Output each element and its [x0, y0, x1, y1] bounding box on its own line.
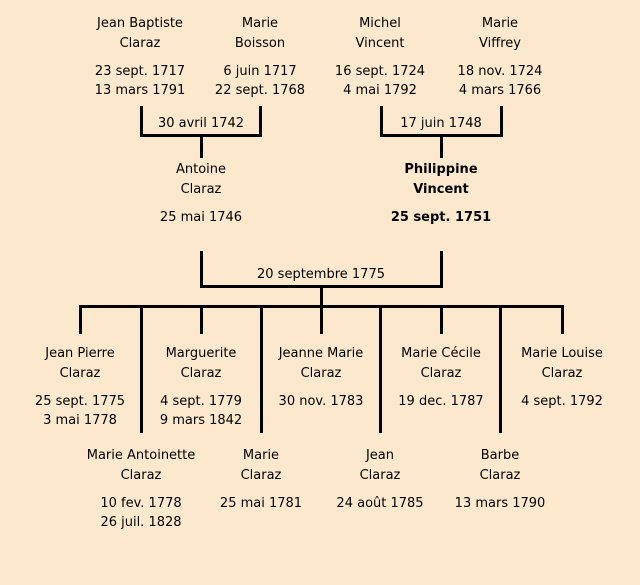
person-philippine-vincent: Philippine Vincent 25 sept. 1751	[376, 160, 506, 227]
person-marguerite-claraz: Marguerite Claraz 4 sept. 1779 9 mars 18…	[136, 344, 266, 430]
person-name: Marie Viffrey	[435, 14, 565, 54]
death-date: 13 mars 1791	[75, 81, 205, 100]
last-name: Claraz	[425, 466, 575, 486]
death-date: 9 mars 1842	[136, 411, 266, 430]
last-name: Claraz	[136, 364, 266, 384]
death-date: 4 mai 1792	[315, 81, 445, 100]
last-name: Boisson	[195, 34, 325, 54]
person-name: Jean Baptiste Claraz	[75, 14, 205, 54]
person-antoine-claraz: Antoine Claraz 25 mai 1746	[136, 160, 266, 227]
person-dates: 25 sept. 1751	[376, 208, 506, 227]
person-michel-vincent: Michel Vincent 16 sept. 1724 4 mai 1792	[315, 14, 445, 100]
marriage1-date-label: 30 avril 1742	[136, 114, 266, 133]
first-name: Marguerite	[136, 344, 266, 364]
drop-line-marie-louise	[561, 305, 564, 334]
birth-date: 25 sept. 1751	[376, 208, 506, 227]
person-name: Philippine Vincent	[376, 160, 506, 200]
person-dates: 23 sept. 1717 13 mars 1791	[75, 62, 205, 100]
person-dates: 4 sept. 1779 9 mars 1842	[136, 392, 266, 430]
person-name: Marie Cécile Claraz	[376, 344, 506, 384]
birth-date: 30 nov. 1783	[256, 392, 386, 411]
first-name: Marie	[435, 14, 565, 34]
drop-line-marguerite	[200, 305, 203, 334]
person-marie-louise-claraz: Marie Louise Claraz 4 sept. 1792	[497, 344, 627, 411]
person-name: Jean Pierre Claraz	[15, 344, 145, 384]
first-name: Marie Louise	[497, 344, 627, 364]
family-tree-diagram: Jean Baptiste Claraz 23 sept. 1717 13 ma…	[0, 0, 640, 585]
person-dates: 19 dec. 1787	[376, 392, 506, 411]
first-name: Marie Cécile	[376, 344, 506, 364]
person-dates: 13 mars 1790	[425, 494, 575, 513]
first-name: Marie	[195, 14, 325, 34]
last-name: Claraz	[15, 364, 145, 384]
person-dates: 16 sept. 1724 4 mai 1792	[315, 62, 445, 100]
person-name: Antoine Claraz	[136, 160, 266, 200]
death-date: 4 mars 1766	[435, 81, 565, 100]
first-name: Philippine	[376, 160, 506, 180]
person-dates: 6 juin 1717 22 sept. 1768	[195, 62, 325, 100]
person-marie-boisson: Marie Boisson 6 juin 1717 22 sept. 1768	[195, 14, 325, 100]
first-name: Jean Baptiste	[75, 14, 205, 34]
birth-date: 25 sept. 1775	[15, 392, 145, 411]
birth-date: 18 nov. 1724	[435, 62, 565, 81]
person-dates: 25 mai 1746	[136, 208, 266, 227]
birth-date: 13 mars 1790	[425, 494, 575, 513]
person-dates: 25 sept. 1775 3 mai 1778	[15, 392, 145, 430]
person-jean-pierre-claraz: Jean Pierre Claraz 25 sept. 1775 3 mai 1…	[15, 344, 145, 430]
person-name: Marguerite Claraz	[136, 344, 266, 384]
last-name: Claraz	[497, 364, 627, 384]
birth-date: 6 juin 1717	[195, 62, 325, 81]
marriage1-child-drop-line	[200, 137, 203, 158]
marriage2-child-drop-line	[440, 137, 443, 158]
marriage2-date-label: 17 juin 1748	[376, 114, 506, 133]
birth-date: 25 mai 1746	[136, 208, 266, 227]
person-dates: 18 nov. 1724 4 mars 1766	[435, 62, 565, 100]
person-jeanne-marie-claraz: Jeanne Marie Claraz 30 nov. 1783	[256, 344, 386, 411]
person-jean-baptiste-claraz: Jean Baptiste Claraz 23 sept. 1717 13 ma…	[75, 14, 205, 100]
person-dates: 4 sept. 1792	[497, 392, 627, 411]
marriage3-date-label: 20 septembre 1775	[236, 265, 406, 284]
birth-date: 16 sept. 1724	[315, 62, 445, 81]
person-name: Michel Vincent	[315, 14, 445, 54]
person-name: Marie Boisson	[195, 14, 325, 54]
drop-line-marie-cecile	[440, 305, 443, 334]
birth-date: 19 dec. 1787	[376, 392, 506, 411]
death-date: 22 sept. 1768	[195, 81, 325, 100]
first-name: Jeanne Marie	[256, 344, 386, 364]
person-name: Barbe Claraz	[425, 446, 575, 486]
person-dates: 30 nov. 1783	[256, 392, 386, 411]
first-name: Barbe	[425, 446, 575, 466]
first-name: Antoine	[136, 160, 266, 180]
first-name: Michel	[315, 14, 445, 34]
last-name: Claraz	[136, 180, 266, 200]
person-marie-cecile-claraz: Marie Cécile Claraz 19 dec. 1787	[376, 344, 506, 411]
drop-line-jean-pierre	[79, 305, 82, 334]
last-name: Viffrey	[435, 34, 565, 54]
death-date: 26 juil. 1828	[66, 513, 216, 532]
person-barbe-claraz: Barbe Claraz 13 mars 1790	[425, 446, 575, 513]
death-date: 3 mai 1778	[15, 411, 145, 430]
last-name: Claraz	[376, 364, 506, 384]
last-name: Claraz	[256, 364, 386, 384]
person-marie-viffrey: Marie Viffrey 18 nov. 1724 4 mars 1766	[435, 14, 565, 100]
birth-date: 23 sept. 1717	[75, 62, 205, 81]
drop-line-jeanne-marie	[320, 305, 323, 334]
last-name: Vincent	[315, 34, 445, 54]
last-name: Vincent	[376, 180, 506, 200]
first-name: Jean Pierre	[15, 344, 145, 364]
person-name: Marie Louise Claraz	[497, 344, 627, 384]
marriage3-bracket-right-line	[440, 251, 443, 285]
birth-date: 4 sept. 1792	[497, 392, 627, 411]
birth-date: 4 sept. 1779	[136, 392, 266, 411]
marriage3-bracket-left-line	[200, 251, 203, 285]
last-name: Claraz	[75, 34, 205, 54]
person-name: Jeanne Marie Claraz	[256, 344, 386, 384]
